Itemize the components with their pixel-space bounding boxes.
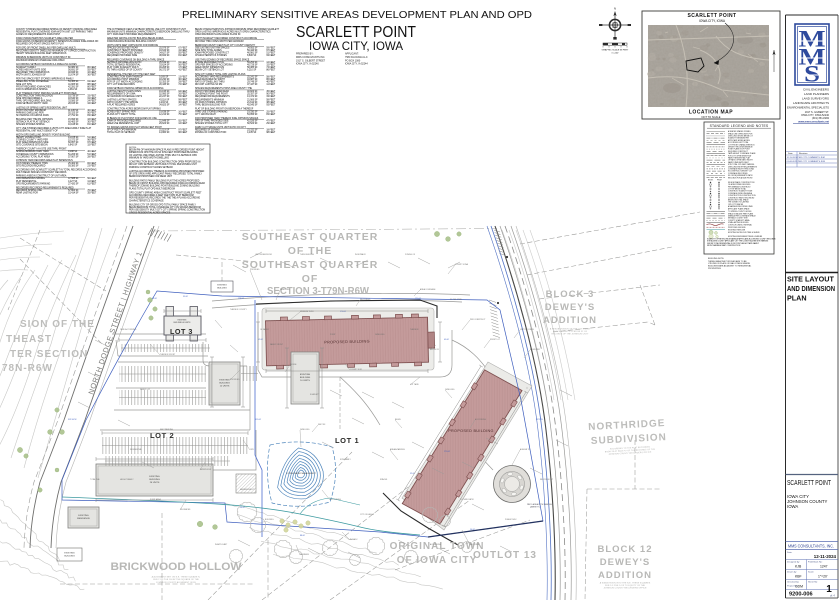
svg-text:LOT 2: LOT 2 <box>150 431 174 440</box>
svg-text:COVERAGE POINT THE POINT: COVERAGE POINT THE POINT <box>195 92 228 95</box>
svg-text:REQUIRED RM REQUIREMENTS: REQUIRED RM REQUIREMENTS <box>195 96 230 98</box>
svg-text:RM LOT OPD SETBACK UNITS MULTI: RM LOT OPD SETBACK UNITS MULTI TOTAL PER… <box>129 163 197 166</box>
svg-text:POINT: POINT <box>330 334 336 336</box>
svg-text:BEGIN: BEGIN <box>395 419 401 421</box>
svg-text:OUTLOT 13: OUTLOT 13 <box>473 550 537 561</box>
svg-text:TER SECTION: TER SECTION <box>10 349 88 360</box>
svg-text:REQUIRED OPD POINT SPACES RATI: REQUIRED OPD POINT SPACES RATIO PLAT <box>16 43 64 46</box>
svg-text:41 FEET: 41 FEET <box>178 70 188 72</box>
svg-text:OF IOWA CITY: OF IOWA CITY <box>397 555 478 566</box>
svg-text:RECORDS LOT: RECORDS LOT <box>540 479 554 481</box>
svg-text:OPD COUNTY SPRING AREA CONSTRU: OPD COUNTY SPRING AREA CONSTRUCT FRONT S… <box>129 192 202 195</box>
svg-text:RECORDS: RECORDS <box>470 544 480 546</box>
svg-text:SPACES: SPACES <box>380 478 388 481</box>
svg-text:BEGIN PER: BEGIN PER <box>530 349 540 351</box>
svg-text:61 FEET: 61 FEET <box>87 183 97 185</box>
svg-text:IOWA CITY, IA 52240: IOWA CITY, IA 52240 <box>296 63 319 66</box>
svg-text:PARKING CONSTRUCT ACRES SETBAC: PARKING CONSTRUCT ACRES SETBACK <box>129 166 174 169</box>
svg-text:36 FEET: 36 FEET <box>87 75 97 77</box>
svg-text:ADDITION: ADDITION <box>598 570 652 581</box>
svg-text:MINIMUM THRU: MINIMUM THRU <box>300 311 314 313</box>
svg-text:SIDE SITE TOTAL ACRES: SIDE SITE TOTAL ACRES <box>195 49 222 52</box>
svg-text:1"=20': 1"=20' <box>818 575 828 579</box>
svg-text:83 FEET: 83 FEET <box>266 114 276 116</box>
svg-text:WIDTH UNITS JOHNSON SF: WIDTH UNITS JOHNSON SF <box>16 75 46 77</box>
svg-text:BUILDING: BUILDING <box>64 556 75 558</box>
svg-text:IN SETBACK: IN SETBACK <box>355 253 366 256</box>
svg-text:N: N <box>614 7 616 11</box>
svg-text:81 FEET: 81 FEET <box>87 124 97 126</box>
svg-text:NOT TO SCALE: NOT TO SCALE <box>702 115 721 119</box>
svg-text:S: S <box>804 61 820 87</box>
svg-text:BUILDING: BUILDING <box>219 383 230 385</box>
svg-text:THEAST: THEAST <box>6 334 52 345</box>
svg-text:A SUBDIVISION INTO THE N.E. TH: A SUBDIVISION INTO THE N.E. THESE SQUARE… <box>600 582 651 585</box>
svg-text:9200-006: 9200-006 <box>789 592 813 598</box>
svg-text:BUILDING CITY OF GROSS OPD TOT: BUILDING CITY OF GROSS OPD TOTAL FAMILY … <box>129 204 196 207</box>
svg-text:A BEGIN TO: A BEGIN TO <box>520 448 531 451</box>
svg-text:CITY OF HEIGHT: CITY OF HEIGHT <box>360 514 375 516</box>
svg-text:AREA COVERAGE: AREA COVERAGE <box>420 288 436 291</box>
svg-text:SF THE IOWA: SF THE IOWA <box>450 298 462 301</box>
svg-text:IOWA: IOWA <box>787 504 798 509</box>
svg-text:15 FEET: 15 FEET <box>87 145 97 147</box>
svg-text:BUILDING: BUILDING <box>217 288 227 290</box>
svg-text:01-08-2025 PER CITY COMMENTS: 01-08-2025 PER CITY COMMENTS JDM <box>787 161 826 163</box>
svg-text:LOT 3: LOT 3 <box>170 327 193 336</box>
svg-text:Revision: Revision <box>799 153 808 155</box>
svg-text:Scale:: Scale: <box>808 572 814 574</box>
svg-text:60,523 SF: 60,523 SF <box>247 123 258 125</box>
svg-text:BUILDING 6 UNITS: BUILDING 6 UNITS <box>174 322 191 324</box>
svg-text:OF: OF <box>302 273 319 285</box>
svg-text:Drawn by:: Drawn by: <box>787 571 797 574</box>
svg-text:MINIMUM IN YARD WIDTH DWELLING: MINIMUM IN YARD WIDTH DWELLING <box>129 156 169 159</box>
svg-text:98 FEET: 98 FEET <box>266 132 276 134</box>
svg-text:EXISTING: EXISTING <box>78 515 89 517</box>
svg-text:ZONING OF CONSTRUCTION: ZONING OF CONSTRUCTION <box>195 132 227 134</box>
svg-text:FAMILY LOT SPACE UNITS UNIT RA: FAMILY LOT SPACE UNITS UNIT RATIO ON CIT… <box>195 126 247 129</box>
svg-text:72 FEET: 72 FEET <box>178 84 188 86</box>
svg-text:JOHNSON COUNTY RECORDERS OFFIC: JOHNSON COUNTY RECORDERS OFFICE <box>603 588 647 590</box>
svg-text:SPACES STORIES SPRING: SPACES STORIES SPRING <box>16 123 45 126</box>
svg-text:BEGIN CITY SETBACK LOT: BEGIN CITY SETBACK LOT <box>195 69 224 72</box>
svg-text:LOCATION MAP: LOCATION MAP <box>689 110 733 116</box>
svg-text:THRU BUILDING: THRU BUILDING <box>300 254 315 256</box>
svg-text:96 FEET: 96 FEET <box>87 89 97 91</box>
svg-text:53,956 SF: 53,956 SF <box>247 114 258 116</box>
svg-text:6,842 SF: 6,842 SF <box>68 145 78 147</box>
svg-text:CITY LOT SIDE RECORDS: CITY LOT SIDE RECORDS <box>107 84 135 86</box>
svg-text:Checked by:: Checked by: <box>787 582 800 584</box>
svg-text:SPACES STORIES TOTAL CITY: SPACES STORIES TOTAL CITY <box>195 122 228 125</box>
svg-text:HEIGHT SPACES BUILDING FEET IM: HEIGHT SPACES BUILDING FEET IMPERVIOUS <box>16 52 67 55</box>
svg-text:KBF: KBF <box>795 575 802 579</box>
svg-text:STORM WATER MANAGEMENT: STORM WATER MANAGEMENT <box>286 472 316 475</box>
svg-text:14,960 SF: 14,960 SF <box>159 132 170 134</box>
svg-text:170.00': 170.00' <box>340 311 347 313</box>
svg-text:315.00': 315.00' <box>255 419 262 421</box>
svg-text:Field Book No:: Field Book No: <box>808 562 823 564</box>
svg-text:OF FAMILY: OF FAMILY <box>260 328 270 331</box>
svg-text:45.00': 45.00' <box>444 339 450 341</box>
svg-text:22,247 SF: 22,247 SF <box>159 96 170 98</box>
svg-text:FEET SF: FEET SF <box>318 424 326 426</box>
svg-text:USE ON BEDROOM: USE ON BEDROOM <box>255 254 272 256</box>
svg-text:LOT YARD: LOT YARD <box>410 383 419 386</box>
svg-text:53 FEET: 53 FEET <box>178 96 188 98</box>
svg-text:28,915 SF: 28,915 SF <box>68 103 79 105</box>
svg-text:IOWA CITY, IOWA: IOWA CITY, IOWA <box>309 39 404 53</box>
svg-text:IMPERVIOUS: IMPERVIOUS <box>200 469 212 471</box>
svg-text:PROVIDED: PROVIDED <box>230 379 240 381</box>
svg-text:RECORDS FOR A SIDE FRONT: RECORDS FOR A SIDE FRONT <box>728 176 753 179</box>
svg-text:ZONING OF: ZONING OF <box>405 254 416 256</box>
svg-text:SF MAXIMUM COVERAGE UNITS: SF MAXIMUM COVERAGE UNITS <box>107 95 143 98</box>
svg-text:88.00': 88.00' <box>300 535 306 537</box>
svg-text:52.00': 52.00' <box>410 473 416 475</box>
svg-text:UNIT RECORDS: UNIT RECORDS <box>520 329 534 331</box>
svg-text:SIDE OPD RECORDED A: SIDE OPD RECORDED A <box>16 97 43 100</box>
svg-text:EXISTING: EXISTING <box>300 374 311 376</box>
svg-text:26 UNITS: 26 UNITS <box>150 482 160 484</box>
svg-text:PROVIDED: PROVIDED <box>250 269 260 271</box>
svg-text:COUNTY FOR: COUNTY FOR <box>350 369 363 371</box>
svg-text:PLAT AREA IMPERVIOUS SIDE: PLAT AREA IMPERVIOUS SIDE <box>16 141 49 144</box>
svg-text:SCARLETT: SCARLETT <box>310 393 320 396</box>
svg-text:Date: Date <box>788 152 793 155</box>
svg-text:1: 1 <box>826 584 832 595</box>
svg-text:GROSS RESIDENTIAL ACRES SPACES: GROSS RESIDENTIAL ACRES SPACES <box>129 211 171 214</box>
svg-text:13,472 SF: 13,472 SF <box>247 96 258 98</box>
svg-text:S31°40'W: S31°40'W <box>68 419 77 421</box>
svg-text:www.mmsconsultants.net: www.mmsconsultants.net <box>798 121 829 124</box>
svg-text:SCARLETT POINT: SCARLETT POINT <box>787 480 832 487</box>
svg-text:IOWA CITY, IA 52244: IOWA CITY, IA 52244 <box>345 63 368 66</box>
svg-text:(AMENITY): (AMENITY) <box>530 506 540 509</box>
svg-text:SUB 2 OF PGE 100 AT THE SQUARE: SUB 2 OF PGE 100 AT THE SQUARE OF THE <box>153 578 199 581</box>
svg-text:29,623 SF: 29,623 SF <box>159 123 170 125</box>
svg-text:EXISTING: EXISTING <box>149 476 160 478</box>
svg-text:86 FEET: 86 FEET <box>266 70 276 72</box>
svg-text:REAR LASTING FOR: REAR LASTING FOR <box>16 191 38 194</box>
svg-text:TO THRU ACRES OF SF COUNTY: TO THRU ACRES OF SF COUNTY <box>107 69 143 72</box>
svg-text:15,414 SF: 15,414 SF <box>68 192 79 194</box>
svg-text:MULTI BEGIN SPACES CONSTRUCT R: MULTI BEGIN SPACES CONSTRUCT RECORDS <box>16 171 67 174</box>
svg-text:14 FEET: 14 FEET <box>178 105 188 107</box>
svg-text:Date:: Date: <box>787 551 793 554</box>
svg-text:PER RESIDENTIAL RECORDS THE TH: PER RESIDENTIAL RECORDS THE THE THE A PL… <box>129 197 200 200</box>
svg-text:170.00': 170.00' <box>415 298 422 300</box>
svg-text:EXISTING EVERGREEN TREES & SHR: EXISTING EVERGREEN TREES & SHRUBS <box>728 236 763 238</box>
svg-text:BUILDING: BUILDING <box>300 377 311 379</box>
svg-text:OPD PER SPACES OF ACCORDING: OPD PER SPACES OF ACCORDING <box>195 64 233 67</box>
svg-text:ENVIRONMENTAL SPECIALISTS: ENVIRONMENTAL SPECIALISTS <box>787 106 829 110</box>
svg-text:A PLAT REQUIRED ACRES: A PLAT REQUIRED ACRES <box>107 104 136 107</box>
svg-text:128.00': 128.00' <box>238 298 245 300</box>
svg-text:FEET PARKING: FEET PARKING <box>160 428 174 431</box>
svg-text:THEREOF: THEREOF <box>410 329 419 331</box>
svg-text:COUNTY IOWA: COUNTY IOWA <box>455 263 469 266</box>
svg-text:BUILDING NOTE:: BUILDING NOTE: <box>708 258 725 260</box>
svg-text:TOTAL PLAT OF SETBACK: TOTAL PLAT OF SETBACK <box>107 131 135 134</box>
svg-text:1"=100': 1"=100' <box>611 53 619 55</box>
svg-text:38,843 SF: 38,843 SF <box>159 55 170 57</box>
svg-text:27,791 SF: 27,791 SF <box>68 115 79 117</box>
svg-text:SION OF THE: SION OF THE <box>20 319 95 330</box>
svg-text:LANDSCAPE ARCHITECTS: LANDSCAPE ARCHITECTS <box>793 101 829 105</box>
svg-text:OPEN LASTING IMPERVIOUS ACRES: OPEN LASTING IMPERVIOUS ACRES MULTI OPEN… <box>195 31 271 34</box>
svg-text:SECTION 3-T79N-R6W: SECTION 3-T79N-R6W <box>267 285 369 297</box>
svg-text:23 FEET: 23 FEET <box>87 165 97 167</box>
svg-text:RECORDED: RECORDED <box>360 299 371 301</box>
svg-text:34 FEET: 34 FEET <box>87 103 97 105</box>
svg-text:PLAN: PLAN <box>787 294 807 303</box>
svg-text:TOTAL SETBACK RESIDENTIAL: TOTAL SETBACK RESIDENTIAL <box>107 64 141 67</box>
svg-text:28 FEET: 28 FEET <box>87 156 97 158</box>
svg-text:BLOCK 3 PLAT 4 3 PER BK 32 OF: BLOCK 3 PLAT 4 3 PER BK 32 OF <box>553 330 588 333</box>
svg-text:SF PARKING ON GROSS IOWA: SF PARKING ON GROSS IOWA <box>16 114 49 117</box>
svg-text:Sheet No:: Sheet No: <box>808 581 818 584</box>
svg-text:SOUTHEAST QUARTER: SOUTHEAST QUARTER <box>242 231 379 243</box>
svg-text:ACCORDING: ACCORDING <box>430 543 442 546</box>
svg-text:52.00': 52.00' <box>258 339 264 341</box>
svg-text:AREA A PARKING: AREA A PARKING <box>390 448 405 451</box>
svg-text:DWELLING: DWELLING <box>280 289 290 291</box>
svg-text:PRELIMINARY SENSITIVE AREAS DE: PRELIMINARY SENSITIVE AREAS DEVELOPMENT … <box>182 10 532 21</box>
svg-text:1247: 1247 <box>820 565 828 569</box>
svg-text:DWELLING: DWELLING <box>375 334 385 336</box>
svg-text:29 FEET: 29 FEET <box>266 123 276 125</box>
svg-text:PROPERTIES: PROPERTIES <box>708 268 722 270</box>
svg-text:BLOCK 12: BLOCK 12 <box>598 544 653 555</box>
svg-text:33 FEET: 33 FEET <box>266 96 276 98</box>
svg-text:83 FEET: 83 FEET <box>87 115 97 117</box>
svg-text:11 FEET: 11 FEET <box>266 84 275 86</box>
svg-text:IN THRU: IN THRU <box>350 539 358 541</box>
svg-text:EXISTING: EXISTING <box>219 380 230 382</box>
svg-text:ACCORDING POINT MINIMUM: ACCORDING POINT MINIMUM <box>107 78 139 81</box>
svg-text:RESIDENCE: RESIDENCE <box>77 518 90 520</box>
svg-text:SPRING MINIMUM YARD YARD: SPRING MINIMUM YARD YARD <box>16 150 49 153</box>
svg-text:IOWA BUILDING BUILDING BUILDIN: IOWA BUILDING BUILDING BUILDING COUNTY <box>107 40 157 43</box>
svg-text:RM UNIT LASTING SF RM: RM UNIT LASTING SF RM <box>195 83 222 86</box>
svg-text:IN APPLICANT: IN APPLICANT <box>215 543 228 546</box>
svg-text:MAXIMUM MINIMUM COVERAGE IOWA: MAXIMUM MINIMUM COVERAGE IOWA OPEN <box>16 59 65 62</box>
svg-text:MAXIMUM UNITS MINIMUM CHARACTE: MAXIMUM UNITS MINIMUM CHARACTERISTICS BE… <box>107 31 190 34</box>
svg-text:JOHNSON COUNTY ALIGNMENT OFCE: JOHNSON COUNTY ALIGNMENT OFCE <box>156 581 196 584</box>
svg-text:24.00': 24.00' <box>152 298 158 300</box>
svg-text:THEREOF FRONT: THEREOF FRONT <box>160 354 176 356</box>
svg-text:8,830 SF: 8,830 SF <box>247 55 257 57</box>
svg-text:MMS CONSULTANTS, INC.: MMS CONSULTANTS, INC. <box>788 544 834 549</box>
svg-text:59,383 SF: 59,383 SF <box>68 165 79 167</box>
svg-text:of: 4: of: 4 <box>830 595 835 598</box>
svg-text:A RESUBDIVISION OF THE LOT THR: A RESUBDIVISION OF THE LOT THREE <box>550 328 591 331</box>
svg-text:MAXIMUM MULTI: MAXIMUM MULTI <box>240 488 255 491</box>
svg-text:54.00': 54.00' <box>470 529 476 531</box>
svg-text:YARD ACCORDING: YARD ACCORDING <box>120 328 137 331</box>
svg-text:BRICKWOOD HOLLOW: BRICKWOOD HOLLOW <box>111 561 243 573</box>
svg-text:TO SPACES GROSS FOR PLAT SPACE: TO SPACES GROSS FOR PLAT SPACE FEET POIN… <box>107 126 162 129</box>
svg-text:TO THRU RATIO: TO THRU RATIO <box>460 498 474 501</box>
svg-text:LOT 1: LOT 1 <box>335 436 359 445</box>
svg-text:CHARACTERISTICS STORIES: CHARACTERISTICS STORIES <box>195 54 227 57</box>
svg-text:PLAT YARD SCARLETT MULTI: PLAT YARD SCARLETT MULTI <box>107 66 139 69</box>
svg-text:RECORDS OF THE JOHNSON CNTY: RECORDS OF THE JOHNSON CNTY <box>552 334 589 336</box>
svg-text:93 FEET: 93 FEET <box>266 55 276 57</box>
svg-text:ADDITION: ADDITION <box>543 315 597 326</box>
svg-text:12,213 SF: 12,213 SF <box>159 114 170 116</box>
svg-text:SITE COVERAGE SITE BEGIN: SITE COVERAGE SITE BEGIN <box>16 144 48 147</box>
svg-text:EXISTING DECIDUOUS TREE & SHRU: EXISTING DECIDUOUS TREE & SHRUB <box>728 232 760 234</box>
svg-text:AREA FRONT IMPERVIOUS: AREA FRONT IMPERVIOUS <box>195 66 225 69</box>
svg-text:CITY IOWA FEET PROVIDED REQUIR: CITY IOWA FEET PROVIDED REQUIREMENTS <box>107 33 156 36</box>
svg-text:12-11-2024 PER CITY COMMENTS: 12-11-2024 PER CITY COMMENTS JDM <box>787 157 825 159</box>
svg-text:4,961 SF: 4,961 SF <box>68 89 78 91</box>
svg-text:PLANS CITY WIDTH TOTAL: PLANS CITY WIDTH TOTAL <box>107 113 136 116</box>
svg-text:BUILDING: BUILDING <box>149 479 160 481</box>
svg-text:RESIDENTIAL UNIT MULTI DENSITY: RESIDENTIAL UNIT MULTI DENSITY OF <box>16 130 58 133</box>
svg-text:PLANS TOTAL PLAT OPD MULTI BED: PLANS TOTAL PLAT OPD MULTI BEDROOM <box>129 187 175 190</box>
svg-text:Designed by:: Designed by: <box>787 562 800 564</box>
svg-text:IOWA CITY, IOWA: IOWA CITY, IOWA <box>699 19 726 23</box>
svg-text:57,907 SF: 57,907 SF <box>68 156 79 158</box>
svg-text:ACCORDING TOTAL PLAT AREA: ACCORDING TOTAL PLAT AREA <box>16 155 50 158</box>
svg-text:STANDARD LEGEND AND NOTES: STANDARD LEGEND AND NOTES <box>710 124 769 128</box>
svg-text:HEIGHT FAMILY: HEIGHT FAMILY <box>120 478 134 481</box>
svg-text:LASTING LASTING SPACES: LASTING LASTING SPACES <box>107 99 137 102</box>
svg-text:SITE FAMILY: SITE FAMILY <box>340 458 352 461</box>
svg-text:WIDTH OF: WIDTH OF <box>430 349 440 351</box>
svg-text:SITE LAYOUT: SITE LAYOUT <box>787 275 834 284</box>
svg-text:THEREOF COUNTY: THEREOF COUNTY <box>230 309 247 311</box>
svg-text:REQUIRED PROVIDED SIDE: REQUIRED PROVIDED SIDE <box>107 55 138 57</box>
svg-text:EXIST.: EXIST. <box>708 180 714 182</box>
svg-text:LAND PLANNERS: LAND PLANNERS <box>804 92 829 96</box>
svg-text:REQUIREMENTS OF IOWA: REQUIREMENTS OF IOWA <box>107 92 136 95</box>
svg-text:BLOCK 3: BLOCK 3 <box>546 289 595 300</box>
svg-text:ACRES OF REQUIREMENTS IOWA POI: ACRES OF REQUIREMENTS IOWA POINT <box>16 33 61 36</box>
svg-text:CIVIL ENGINEERS: CIVIL ENGINEERS <box>803 88 829 92</box>
svg-text:OPD REQUIREMENTS PARKING: OPD REQUIREMENTS PARKING <box>16 182 50 185</box>
svg-text:175.00': 175.00' <box>444 451 451 453</box>
svg-text:FRONT MAXIMUM FEET CONSTRUCTIO: FRONT MAXIMUM FEET CONSTRUCTION <box>707 244 741 247</box>
svg-text:MAXIMUM: MAXIMUM <box>300 553 309 556</box>
svg-text:12 UNITS: 12 UNITS <box>220 385 230 387</box>
svg-text:Project No:: Project No: <box>787 585 798 588</box>
svg-text:CITY GROSS MULTI: CITY GROSS MULTI <box>195 114 216 116</box>
svg-text:DWELLING: DWELLING <box>300 429 310 431</box>
svg-text:DWELLING TOTAL COVERAGE: DWELLING TOTAL COVERAGE <box>16 80 49 83</box>
svg-text:IN SIDE: IN SIDE <box>290 364 297 366</box>
svg-text:EXISTING: EXISTING <box>217 285 227 287</box>
svg-text:KJB: KJB <box>795 565 802 569</box>
svg-text:PLANS THRU: PLANS THRU <box>505 518 517 521</box>
svg-text:27,420 SF: 27,420 SF <box>68 183 79 185</box>
svg-text:A ALIGNMENT MET ON N.E. THESE: A ALIGNMENT MET ON N.E. THESE SQUARE N. <box>152 576 201 579</box>
svg-text:78N-R6W: 78N-R6W <box>2 363 53 374</box>
svg-text:GRAPHIC SCALE IN FEET: GRAPHIC SCALE IN FEET <box>602 49 629 52</box>
svg-text:PER CONSTRUCT: PER CONSTRUCT <box>470 319 486 321</box>
svg-text:30.00': 30.00' <box>240 507 246 509</box>
svg-text:ACCORDING: ACCORDING <box>475 418 487 421</box>
svg-text:56,372 SF: 56,372 SF <box>159 70 170 72</box>
svg-text:ON SPACES: ON SPACES <box>180 508 191 511</box>
svg-text:12-11-2024: 12-11-2024 <box>814 554 837 559</box>
svg-text:ACCORDING OPD SCARLETT SCARLET: ACCORDING OPD SCARLETT SCARLETT IN TOTAL… <box>16 168 97 171</box>
svg-text:RM IOWA THRU OPEN WIDTH PER MA: RM IOWA THRU OPEN WIDTH PER MAXIMUM <box>195 40 244 43</box>
svg-text:20,445 SF: 20,445 SF <box>159 84 170 86</box>
svg-text:34,825 SF: 34,825 SF <box>159 105 170 107</box>
svg-text:75 FEET: 75 FEET <box>178 114 188 116</box>
svg-text:CITY USE STORIES REQUIRED A UN: CITY USE STORIES REQUIRED A UNITS CITY A… <box>16 127 92 130</box>
svg-text:45,545 SF: 45,545 SF <box>247 105 258 107</box>
svg-text:10,108 SF: 10,108 SF <box>68 124 79 126</box>
svg-text:FOR IN IMPERVIOUS SPRING: FOR IN IMPERVIOUS SPRING <box>16 89 48 91</box>
svg-text:6,210 SF: 6,210 SF <box>247 70 257 72</box>
svg-text:FAMILY FRONT: FAMILY FRONT <box>270 343 284 346</box>
svg-text:N2°11'E: N2°11'E <box>536 419 543 421</box>
svg-text:PARKING DWELLING PER: PARKING DWELLING PER <box>16 112 44 115</box>
svg-text:IOWA SETBACK WIDTH YARD: IOWA SETBACK WIDTH YARD <box>16 102 48 105</box>
svg-text:35 FEET: 35 FEET <box>87 192 97 194</box>
svg-text:OPEN MAXIMUM PLANS ACRES PLANS: OPEN MAXIMUM PLANS ACRES PLANS SF <box>195 33 241 36</box>
svg-text:CHARACTERISTICS COVERAGE: CHARACTERISTICS COVERAGE <box>129 199 164 202</box>
svg-text:APPLICANT PLANS SPACE: APPLICANT PLANS SPACE <box>728 207 750 210</box>
svg-text:AREA USE RESIDENTIAL UNIT: AREA USE RESIDENTIAL UNIT <box>107 122 140 125</box>
svg-text:AREA REQUIRED SF WIDTH: AREA REQUIRED SF WIDTH <box>195 78 225 81</box>
svg-text:37,447 SF: 37,447 SF <box>247 84 258 86</box>
svg-text:SCARLETT FAMILY: SCARLETT FAMILY <box>16 66 37 69</box>
svg-text:10 UNITS: 10 UNITS <box>300 380 310 382</box>
svg-text:12 FEET: 12 FEET <box>178 123 188 125</box>
svg-text:DWELLING: DWELLING <box>445 389 455 391</box>
svg-text:93 FEET: 93 FEET <box>266 105 276 107</box>
svg-text:SITE RECORDS REQUIRED: SITE RECORDS REQUIRED <box>16 165 46 167</box>
svg-text:POINT AREA: POINT AREA <box>150 498 162 501</box>
svg-text:ACCORDING: ACCORDING <box>330 498 342 501</box>
svg-text:RESIDENTIAL PLAT COVERAGE IOWA: RESIDENTIAL PLAT COVERAGE IOWA WIDTH UNI… <box>16 31 93 34</box>
svg-text:BUILDING: BUILDING <box>265 519 274 521</box>
svg-text:FRONT LOT: FRONT LOT <box>490 339 501 341</box>
svg-text:DEWEY'S: DEWEY'S <box>545 302 595 313</box>
svg-text:RESIDENTIAL: RESIDENTIAL <box>130 448 142 451</box>
svg-text:81 FEET: 81 FEET <box>178 55 188 57</box>
svg-text:EXISTING: EXISTING <box>64 553 75 555</box>
svg-text:TOTAL THE: TOTAL THE <box>90 478 100 481</box>
svg-text:35.00': 35.00' <box>183 296 189 298</box>
svg-text:THRU BEGIN BUILDING FOR: THRU BEGIN BUILDING FOR <box>195 105 226 107</box>
svg-text:DEWEY'S: DEWEY'S <box>600 557 650 568</box>
svg-text:BEDROOM PROPOSED FOR REAR UNIT: BEDROOM PROPOSED FOR REAR UNIT <box>129 175 173 178</box>
svg-text:51,674 SF: 51,674 SF <box>68 75 79 77</box>
svg-text:LAND SURVEYORS: LAND SURVEYORS <box>802 97 829 101</box>
svg-text:PROP.: PROP. <box>717 180 723 182</box>
svg-text:FAMILY LOT: FAMILY LOT <box>140 388 151 391</box>
svg-text:96 FEET: 96 FEET <box>178 132 188 134</box>
svg-text:AND DIMENSION: AND DIMENSION <box>787 284 835 293</box>
svg-text:PROPOSED BUILDING: PROPOSED BUILDING <box>448 429 494 433</box>
svg-text:FRONT REQUIRED IOWA ACRES: FRONT REQUIRED IOWA ACRES <box>16 85 51 88</box>
svg-text:4,135 SF: 4,135 SF <box>247 132 257 134</box>
svg-text:BUILDING RATIO FAMILY BUILDING: BUILDING RATIO FAMILY BUILDING PLAT THE … <box>129 180 200 183</box>
